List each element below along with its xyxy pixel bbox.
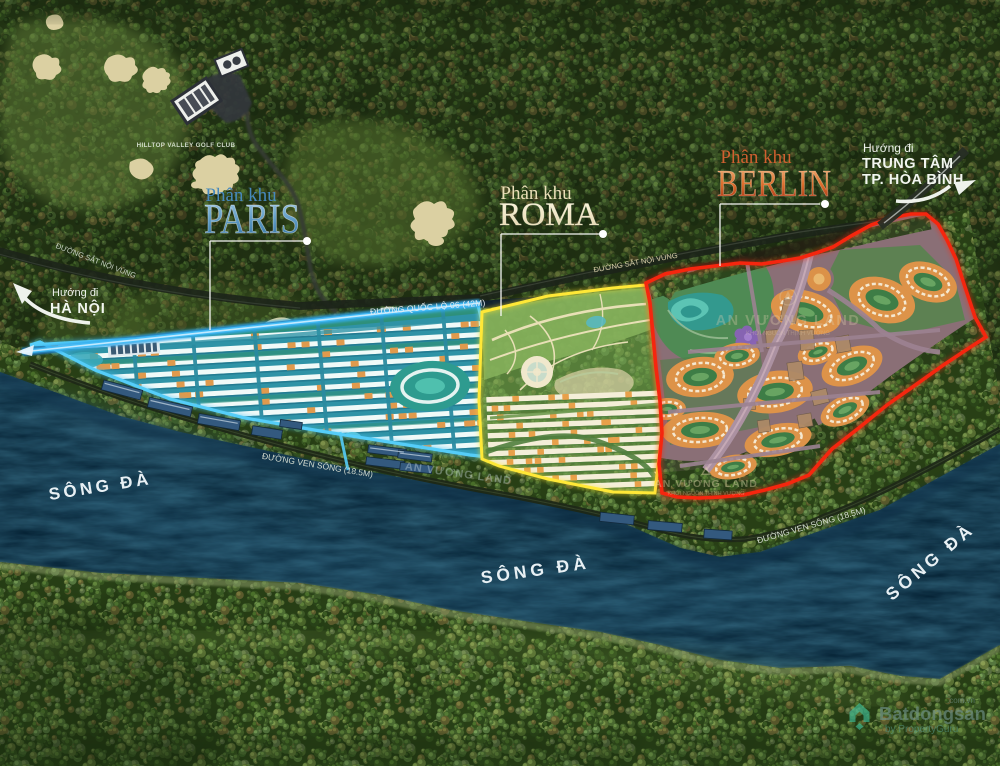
svg-text:Hướng đi: Hướng đi	[52, 287, 98, 299]
svg-text:KHỞI NGUỒN THỊNH VƯỢNG: KHỞI NGUỒN THỊNH VƯỢNG	[668, 490, 745, 497]
svg-text:AN VƯƠNG LAND: AN VƯƠNG LAND	[716, 313, 861, 329]
svg-text:.com.vn: .com.vn	[947, 696, 975, 705]
svg-text:AN VƯƠNG LAND: AN VƯƠNG LAND	[654, 478, 758, 490]
svg-text:by PropertyGuru: by PropertyGuru	[885, 724, 958, 735]
svg-text:ROMA: ROMA	[499, 197, 599, 233]
svg-text:BERLIN: BERLIN	[717, 163, 831, 205]
svg-text:HILLTOP VALLEY GOLF CLUB: HILLTOP VALLEY GOLF CLUB	[137, 142, 236, 149]
svg-text:TRUNG TÂM: TRUNG TÂM	[862, 154, 954, 172]
svg-text:Hướng đi: Hướng đi	[863, 141, 914, 155]
svg-text:PARIS: PARIS	[204, 197, 300, 243]
svg-text:Batdongsan: Batdongsan	[879, 703, 986, 724]
svg-text:KHỞI NGUỒN THỊNH VƯỢNG: KHỞI NGUỒN THỊNH VƯỢNG	[746, 330, 830, 337]
svg-text:HÀ NỘI: HÀ NỘI	[50, 299, 106, 317]
